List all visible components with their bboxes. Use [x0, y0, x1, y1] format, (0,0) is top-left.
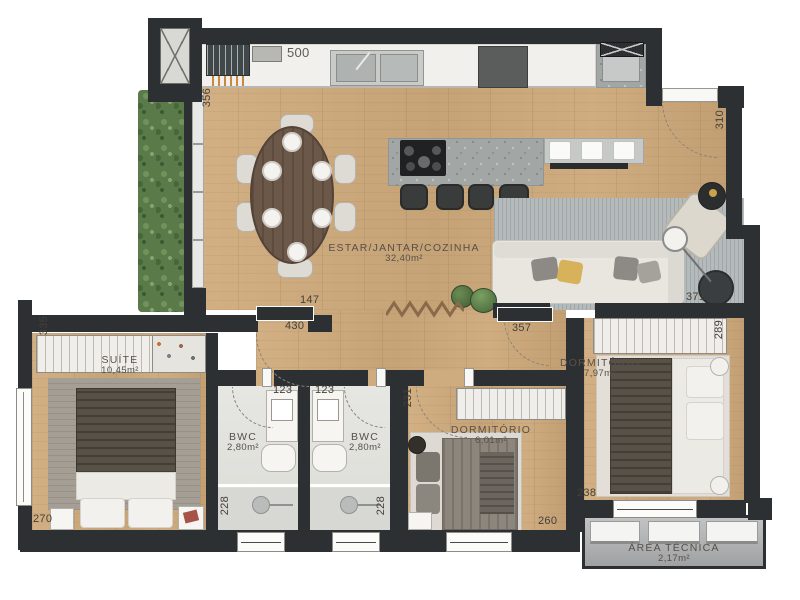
bar-stool — [468, 184, 494, 210]
dorm1-window — [446, 532, 512, 552]
ac-unit — [648, 521, 700, 544]
shaft-x — [160, 28, 190, 84]
dorm1-door-gap — [424, 370, 466, 386]
nightstand-round — [710, 476, 729, 495]
dim-box-500 — [252, 46, 282, 62]
dorm1-wardrobe — [456, 388, 566, 420]
dim-289: 289 — [713, 320, 725, 339]
dining-chair — [334, 154, 356, 184]
top-wall — [196, 28, 646, 44]
shower-arm — [269, 504, 293, 506]
room-label-tech: ÁREA TÉCNICA 2,17m² — [592, 542, 756, 565]
ac-unit — [706, 521, 758, 544]
right-wall-upper — [726, 100, 742, 228]
room-area: 2,80m² — [221, 443, 265, 454]
dim-356: 356 — [201, 88, 213, 107]
decor-table-gold — [709, 189, 717, 197]
dorm1-clock-table — [408, 436, 426, 454]
room-label-dorm1: DORMITÓRIO 6,01m² — [448, 424, 534, 447]
vertical-garden — [138, 90, 186, 312]
cooktop-burner — [406, 162, 415, 171]
floor-lamp — [662, 226, 688, 252]
dim-228a: 228 — [219, 496, 231, 515]
room-label-living: ESTAR/JANTAR/COZINHA 32,40m² — [323, 242, 485, 265]
bwc-divider-wall — [298, 370, 310, 532]
placemat — [581, 141, 603, 160]
ac-unit — [590, 521, 640, 544]
placemat — [549, 141, 571, 160]
shower-glass — [310, 484, 390, 487]
tech-corner-wall — [748, 498, 772, 520]
suite-pillow — [128, 498, 173, 528]
dorm1-dorm2-wall — [566, 318, 584, 532]
room-label-bwc1: BWC 2,80m² — [221, 431, 265, 454]
suite-window — [16, 388, 32, 506]
shower-head — [252, 496, 270, 514]
dim-371: 371 — [686, 291, 705, 303]
dorm1-door-leaf — [464, 368, 474, 387]
cooktop-burner — [404, 146, 414, 156]
cooktop-burner — [418, 156, 430, 168]
suite-right-wall — [206, 333, 218, 532]
dish-rack — [206, 44, 250, 76]
dorm2-bottom-wall-l — [584, 500, 614, 517]
planter-edge — [184, 90, 192, 290]
vanity-sink — [317, 399, 339, 421]
room-area: 10,45m² — [88, 366, 152, 377]
nightstand — [50, 508, 74, 530]
bwc1-door-leaf — [262, 368, 272, 387]
suite-wardrobe-shelves — [152, 336, 205, 372]
cooktop-burner — [432, 162, 441, 171]
bwc1-window — [237, 532, 285, 552]
plate — [287, 242, 307, 262]
dimension-bar — [256, 306, 314, 321]
toilet — [261, 444, 296, 472]
dorm1-pillow — [416, 452, 440, 482]
dim-335: 335 — [38, 316, 50, 335]
shower-glass — [218, 484, 298, 487]
nightstand-round — [710, 357, 729, 376]
dorm1-shelf — [408, 512, 432, 530]
dim-270: 270 — [33, 513, 52, 525]
suite-top-wall — [28, 315, 258, 332]
laundry-shaft-x — [600, 42, 644, 57]
dim-430: 430 — [285, 320, 304, 332]
dim-357: 357 — [512, 322, 531, 334]
toilet — [312, 444, 347, 472]
dining-chair — [334, 202, 356, 232]
floor-plan: 500 356 310 371 147 430 357 335 270 123 … — [0, 0, 800, 600]
plate — [312, 161, 332, 181]
shower-head — [340, 496, 358, 514]
dim-147: 147 — [300, 294, 319, 306]
zigzag-decor — [386, 299, 464, 319]
glazing-corner — [184, 288, 206, 318]
suite-bed-duvet — [76, 472, 176, 500]
laundry-sink — [602, 54, 640, 82]
dim-231: 231 — [402, 388, 414, 407]
dimension-bar — [497, 307, 553, 322]
sofa-back — [494, 242, 682, 258]
room-label-dorm2: DORMITÓRIO 7,97m² — [560, 357, 640, 380]
bar-runner — [550, 163, 628, 169]
suite-window-pane — [23, 392, 24, 502]
dim-123a: 123 — [273, 384, 292, 396]
cooktop-burner — [432, 146, 441, 155]
plate — [312, 208, 332, 228]
exterior — [662, 10, 732, 88]
dim-123b: 123 — [315, 384, 334, 396]
entry-left-jamb — [646, 28, 662, 106]
dim-228b: 228 — [375, 496, 387, 515]
room-area: 32,40m² — [323, 254, 485, 265]
dorm2-pillow — [686, 402, 724, 440]
bwc2-door-leaf — [376, 368, 386, 387]
dim-310: 310 — [714, 110, 726, 129]
placemat — [613, 141, 635, 160]
plate — [282, 132, 302, 152]
dorm2-top-wall — [595, 303, 760, 318]
throw-pillow — [531, 256, 560, 281]
room-area: 6,01m² — [448, 436, 534, 447]
utensil-hooks — [212, 76, 246, 86]
dim-500: 500 — [287, 45, 310, 60]
dim-238: 238 — [577, 487, 596, 499]
suite-pillow — [80, 498, 125, 528]
bar-stool — [436, 184, 464, 210]
dorm1-throw — [480, 452, 514, 514]
right-wall-lower — [744, 318, 760, 503]
fridge — [478, 46, 528, 88]
room-label-bwc2: BWC 2,80m² — [343, 431, 387, 454]
bwc2-window — [332, 532, 380, 552]
bar-stool — [400, 184, 428, 210]
suite-bed-blanket — [76, 388, 176, 474]
room-label-suite: SUÍTE 10,45m² — [88, 354, 152, 377]
dorm2-window — [613, 500, 697, 518]
throw-pillow — [556, 259, 583, 285]
room-area: 2,17m² — [592, 554, 756, 565]
plate — [262, 208, 282, 228]
plate — [262, 161, 282, 181]
room-area: 7,97m² — [560, 369, 640, 380]
room-area: 2,80m² — [343, 443, 387, 454]
living-glazing — [192, 92, 204, 290]
throw-pillow — [613, 256, 639, 281]
dim-260: 260 — [538, 515, 557, 527]
dorm1-pillow — [416, 484, 440, 514]
entry-door-leaf — [662, 88, 718, 102]
kitchen-sink-basin-right — [380, 54, 418, 82]
vanity-sink — [271, 399, 293, 421]
dorm2-wardrobe — [593, 318, 727, 354]
dorm2-bottom-wall-r — [694, 500, 746, 517]
